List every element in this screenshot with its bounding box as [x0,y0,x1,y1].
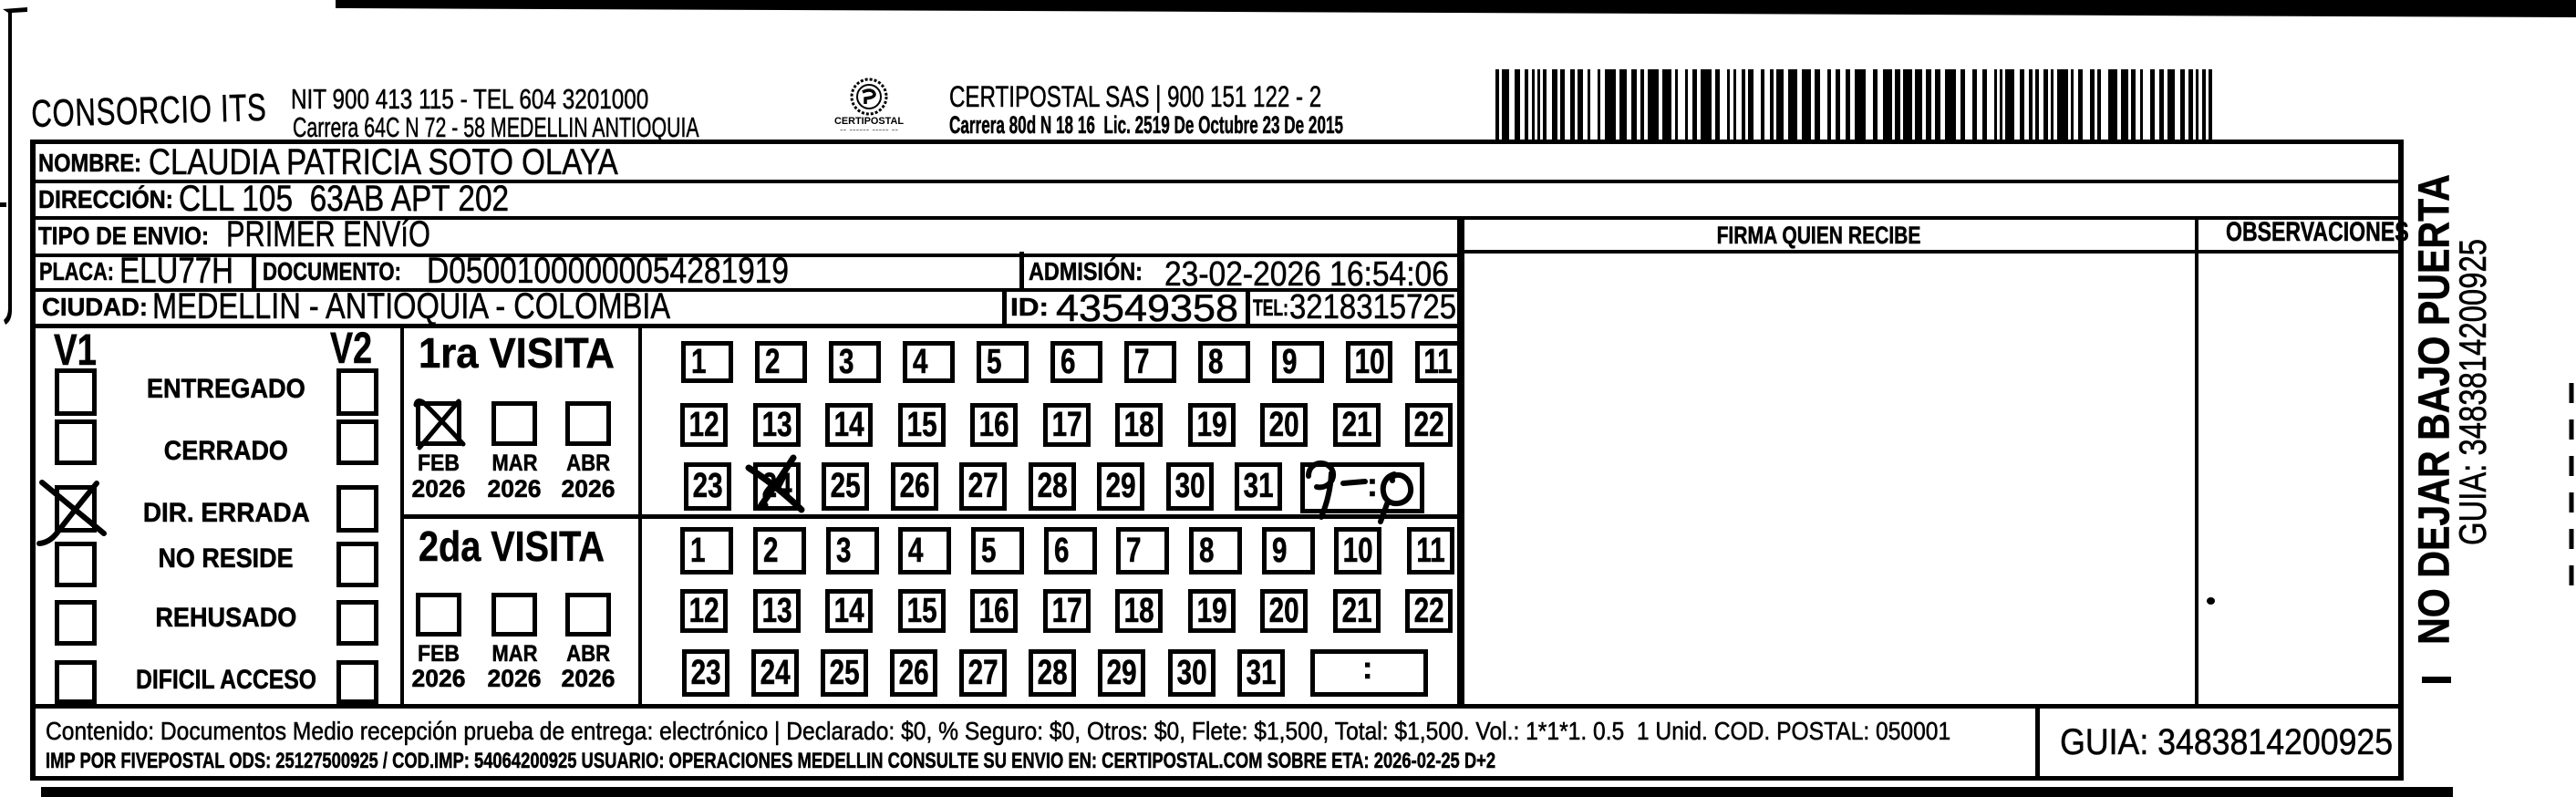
svg-text:CERTIPOSTAL: CERTIPOSTAL [834,116,904,127]
svg-text:-- ------ ----- --: -- ------ ----- -- [840,128,899,134]
